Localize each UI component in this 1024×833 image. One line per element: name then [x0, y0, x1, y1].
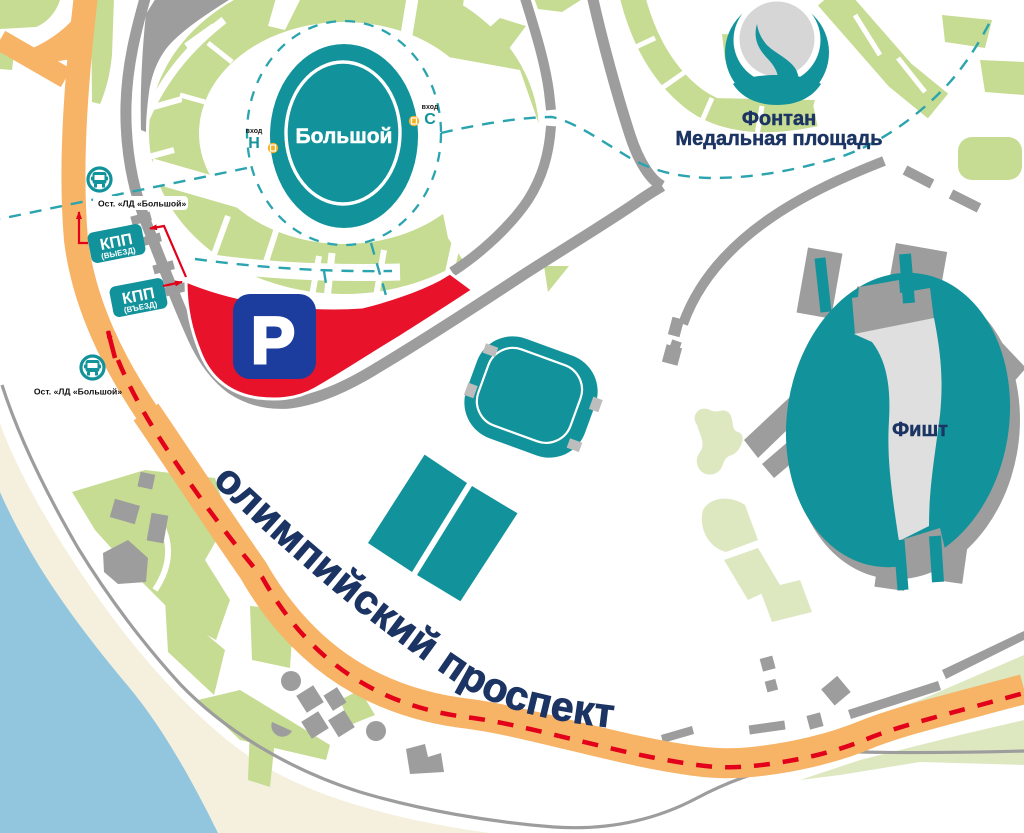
svg-text:Медальная площадь: Медальная площадь	[675, 128, 882, 150]
svg-text:Фишт: Фишт	[892, 419, 948, 441]
svg-text:С: С	[424, 111, 436, 128]
svg-text:вход: вход	[246, 128, 263, 135]
svg-text:вход: вход	[422, 104, 439, 111]
svg-text:Ост. «ЛД «Большой»: Ост. «ЛД «Большой»	[34, 387, 122, 397]
svg-text:Фонтан: Фонтан	[742, 108, 816, 130]
svg-text:Ост. «ЛД «Большой»: Ост. «ЛД «Большой»	[98, 199, 186, 209]
svg-text:Н: Н	[248, 135, 260, 152]
svg-text:P: P	[251, 303, 295, 377]
svg-text:Большой: Большой	[296, 125, 393, 148]
